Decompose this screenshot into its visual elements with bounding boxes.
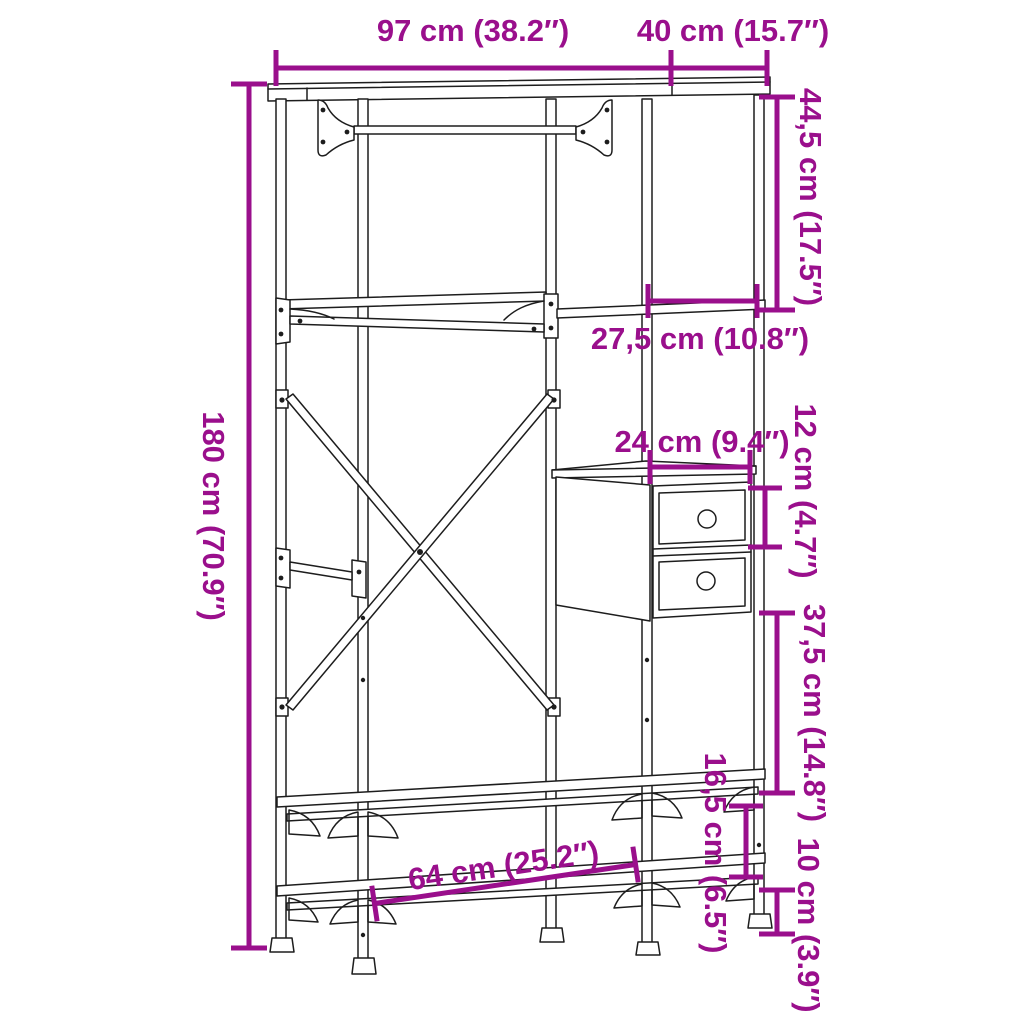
drawer-unit-front	[653, 482, 751, 618]
drawer-unit	[556, 477, 751, 621]
dim-label-drawer-height: 12 cm (4.7″)	[788, 403, 823, 578]
connector-plate-right	[352, 560, 366, 598]
dim-label-mid-right-height: 37,5 cm (14.8″)	[797, 604, 832, 822]
post-middle-foot	[540, 928, 564, 942]
bolt-icon	[551, 704, 556, 709]
wardrobe-dimension-diagram: 97 cm (38.2″) 40 cm (15.7″) 44,5 cm (17.…	[0, 0, 1024, 1024]
bolt-icon	[361, 678, 365, 682]
bolt-icon	[605, 108, 610, 113]
bolt-icon	[279, 576, 284, 581]
diagram-stage: 97 cm (38.2″) 40 cm (15.7″) 44,5 cm (17.…	[0, 0, 1024, 1024]
drawer-knob-icon	[697, 572, 715, 590]
post-front-left	[358, 99, 368, 959]
dim-label-drawer-width: 24 cm (9.4″)	[614, 424, 789, 459]
bolt-icon	[532, 327, 537, 332]
bolt-icon	[605, 140, 610, 145]
hanging-rod	[354, 126, 576, 134]
shelf-truss-curve-right	[504, 301, 544, 320]
dim-label-depth: 40 cm (15.7″)	[637, 13, 829, 48]
furniture-line-art	[268, 77, 772, 974]
bolt-icon	[321, 140, 326, 145]
dim-label-total-width: 97 cm (38.2″)	[377, 13, 569, 48]
post-back-left	[276, 99, 286, 939]
bolt-icon	[279, 704, 284, 709]
bolt-icon	[279, 397, 284, 402]
bolt-icon	[361, 616, 365, 620]
left-mid-shelf	[281, 292, 546, 309]
bolt-icon	[345, 130, 350, 135]
drawer-knob-icon	[698, 510, 716, 528]
bolt-icon	[321, 108, 326, 113]
bolt-icon	[549, 302, 554, 307]
bolt-icon	[551, 397, 556, 402]
bolt-icon	[357, 570, 362, 575]
bolt-icon	[298, 319, 303, 324]
bolt-icon	[645, 718, 649, 722]
bolt-icon	[279, 308, 284, 313]
shelf-plate-left	[276, 298, 290, 344]
dim-label-shelf-gap: 16,5 cm (6.5″)	[698, 753, 733, 954]
bolt-icon	[361, 933, 365, 937]
dim-label-right-shelf-width: 27,5 cm (10.8″)	[591, 321, 809, 356]
post-front-left-foot	[352, 958, 376, 974]
shelf-plate-right	[544, 294, 558, 338]
top-board	[268, 77, 770, 101]
bolt-icon	[279, 332, 284, 337]
left-mid-shelf-assembly	[276, 292, 558, 344]
dim-label-ground-clearance: 10 cm (3.9″)	[791, 837, 826, 1012]
post-mid-right-foot	[636, 942, 660, 955]
bolt-icon	[549, 326, 554, 331]
bolt-icon	[417, 549, 423, 555]
drawer-unit-side	[556, 477, 650, 621]
bolt-icon	[279, 556, 284, 561]
dim-180-line	[231, 84, 267, 948]
post-right-foot	[748, 914, 772, 928]
left-connector-bar	[276, 548, 366, 598]
post-back-left-foot	[270, 938, 294, 952]
bolt-icon	[645, 658, 649, 662]
connector-plate-left	[276, 548, 290, 588]
dim-label-total-height: 180 cm (70.9″)	[196, 411, 231, 621]
top-board-slab	[268, 77, 770, 101]
connector-bar	[290, 562, 352, 580]
bolt-icon	[757, 843, 761, 847]
bolt-icon	[581, 130, 586, 135]
dim-12-line	[748, 488, 782, 547]
dim-label-top-right-height: 44,5 cm (17.5″)	[793, 88, 828, 306]
